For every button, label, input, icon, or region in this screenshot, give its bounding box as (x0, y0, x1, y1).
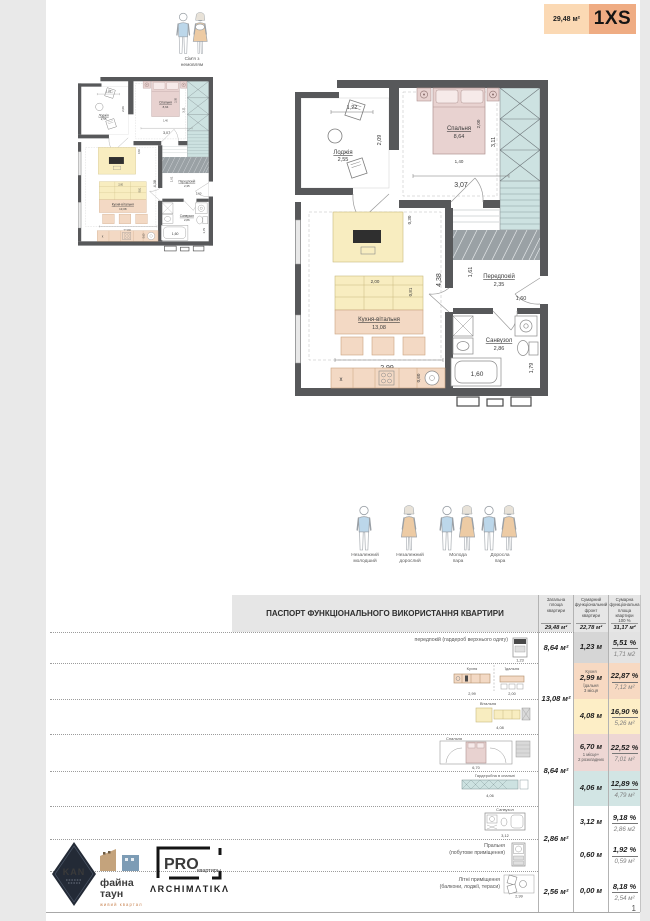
svg-text:0,81: 0,81 (408, 287, 413, 296)
svg-text:1,60: 1,60 (471, 371, 484, 378)
row-separator (50, 839, 538, 840)
svg-text:2,09: 2,09 (377, 135, 383, 146)
front-cell-row1: 1,23 м (574, 632, 608, 663)
svg-text:3,07: 3,07 (454, 182, 468, 189)
area-cell-bedroom: 8,64 м² (539, 734, 573, 806)
svg-text:2,55: 2,55 (338, 157, 349, 163)
mini-diagram-bathroom: Санвузол 3,12 (478, 806, 532, 838)
svg-text:Спальня: Спальня (447, 126, 471, 132)
percent-cell-row4: 22,52 %7,01 м² (609, 734, 640, 771)
row-separator (50, 806, 538, 807)
kan-logo: KAN (52, 842, 96, 906)
mini-diagram-loggia: 2,99 (503, 874, 535, 898)
mini-diagram-living: Вітальня 4,08 (474, 700, 532, 731)
svg-text:3,11: 3,11 (491, 137, 497, 147)
bottom-rule (46, 912, 640, 913)
row-label-hall: передпокій (гардероб верхнього одягу) (320, 637, 508, 644)
svg-text:6,70: 6,70 (472, 766, 479, 770)
svg-text:Вітальня: Вітальня (480, 701, 496, 706)
wardrobe-zone (500, 88, 540, 230)
svg-text:1,61: 1,61 (468, 267, 474, 278)
svg-text:4,08: 4,08 (496, 726, 503, 730)
mini-diagram-kitchen-dining: Кухня Їдальня 2,99 2,00 (452, 665, 532, 697)
svg-text:Санвузол: Санвузол (496, 807, 514, 812)
resident-icon-single-young (354, 505, 376, 551)
svg-text:Санвузол: Санвузол (486, 338, 513, 344)
kitchen-counter (331, 368, 445, 388)
svg-text:8,64: 8,64 (454, 134, 465, 140)
svg-text:KAN: KAN (63, 867, 86, 877)
percent-cell-row2: 22,87 %7,12 м² (609, 663, 640, 699)
svg-text:2,00: 2,00 (371, 279, 380, 284)
tech-boxes (457, 397, 531, 406)
apartment-area-badge: 29,48 м² (544, 4, 589, 34)
pro-apartments-logo: PRO квартиры (155, 845, 223, 886)
svg-text:1,22: 1,22 (347, 105, 358, 111)
svg-text:Передпокій: Передпокій (483, 273, 515, 280)
svg-text:2,86: 2,86 (494, 346, 505, 352)
svg-text:0,30: 0,30 (407, 215, 412, 224)
area-cell-bathroom: 2,86 м² (539, 806, 573, 871)
faina-town-blocks-icon (100, 846, 148, 873)
percent-cell-row3: 16,90 %5,26 м² (609, 699, 640, 734)
infant-bundle-icon (196, 24, 205, 30)
percent-cell-row5: 12,89 %4,79 м² (609, 771, 640, 806)
front-cell-row3: 4,08 м (574, 699, 608, 734)
apartment-type-badge: 1XS (589, 4, 636, 34)
percent-cell-row7: 1,92 %0,59 м² (609, 839, 640, 871)
resident-label-4: Дорослапара (470, 553, 530, 566)
svg-text:13,08: 13,08 (372, 325, 386, 331)
svg-text:Спальня: Спальня (446, 736, 462, 741)
front-cell-row7: 0,60 м (574, 839, 608, 871)
svg-text:3,12: 3,12 (501, 834, 508, 838)
svg-text:2,00: 2,00 (476, 119, 481, 128)
row-separator (50, 699, 538, 700)
row-label-laundry: Пральня (побутове приміщення) (330, 843, 505, 857)
resident-icon-adult-couple (479, 505, 521, 551)
table-col-total-area: Загальна площа квартири29,48 м² (539, 595, 573, 632)
table-title: ПАСПОРТ ФУНКЦІОНАЛЬНОГО ВИКОРИСТАННЯ КВА… (232, 595, 538, 632)
svg-text:x: x (340, 377, 343, 383)
floor-plan-large: Лоджія 2,55 1,22 2,09 Спальня 8,64 2,00 … (295, 80, 548, 408)
faina-town-logo: файна таун живий квартал (100, 846, 148, 907)
svg-text:1,23: 1,23 (516, 659, 523, 663)
svg-text:квартиры: квартиры (197, 868, 221, 874)
svg-text:1,79: 1,79 (529, 363, 535, 374)
svg-text:Лоджія: Лоджія (333, 150, 352, 156)
front-cell-row6: 3,12 м (574, 806, 608, 839)
svg-text:1,60: 1,60 (516, 296, 527, 302)
svg-text:Гардеробна в спальні: Гардеробна в спальні (475, 773, 515, 778)
front-cell-row8: 0,00 м (574, 871, 608, 912)
mini-diagram-wardrobe: Гардеробна в спальні 4,06 (458, 772, 532, 800)
row-separator (50, 663, 538, 664)
svg-text:Їдальня: Їдальня (505, 666, 519, 671)
mini-diagram-laundry (510, 841, 528, 869)
svg-text:2,35: 2,35 (494, 282, 505, 288)
svg-text:4,06: 4,06 (486, 794, 493, 798)
page-number: 1 (616, 904, 636, 913)
table-gridline (640, 595, 641, 912)
percent-cell-row1: 5,51 %1,71 м2 (609, 632, 640, 663)
area-cell-kitchen: 13,08 м² (539, 663, 573, 734)
resident-icon-single-adult (399, 505, 421, 551)
front-cell-row4: 6,70 м1 місце+ 2 розкладних (574, 734, 608, 771)
area-cell-summer: 2,56 м² (539, 871, 573, 912)
family-with-infant-icon (174, 12, 212, 56)
svg-text:2,99: 2,99 (468, 692, 475, 696)
svg-text:1,40: 1,40 (455, 159, 464, 164)
svg-text:2,99: 2,99 (515, 895, 522, 899)
row-label-summer: Літні приміщення (балкони, лоджії, терас… (325, 877, 500, 891)
resident-icon-young-couple (437, 505, 479, 551)
floor-plan-small (78, 77, 213, 252)
apartment-datasheet-page: 29,48 м² 1XS Сім'я знемовлям (0, 0, 650, 921)
svg-text:Кухня-вітальня: Кухня-вітальня (358, 317, 400, 323)
front-cell-row2: Кухня2,99 мЇдальня 3 місця (574, 663, 608, 699)
table-col-functional-area: Сумарна функціональна площа квартири 100… (609, 595, 640, 632)
area-cell-hall: 8,64 м² (539, 632, 573, 663)
tv-unit (333, 212, 403, 262)
table-col-functional-front: Сумарний функціональний фронт квартири22… (574, 595, 608, 632)
archimatika-logo: ΛRCHIMΛTIKΛ (150, 884, 230, 894)
mini-diagram-hall: 1,23 (511, 636, 529, 662)
percent-cell-row6: 9,18 %2,86 м2 (609, 806, 640, 839)
family-icon-label: Сім'я знемовлям (160, 57, 224, 70)
front-cell-row5: 4,06 м (574, 771, 608, 806)
svg-text:2,00: 2,00 (508, 692, 515, 696)
svg-text:4,38: 4,38 (436, 273, 443, 287)
svg-text:Кухня: Кухня (467, 666, 478, 671)
mini-diagram-bedroom: Спальня 6,70 (438, 735, 532, 770)
svg-text:PRO: PRO (164, 856, 199, 873)
svg-text:0,60: 0,60 (416, 373, 421, 382)
shaft-zone (453, 230, 540, 260)
